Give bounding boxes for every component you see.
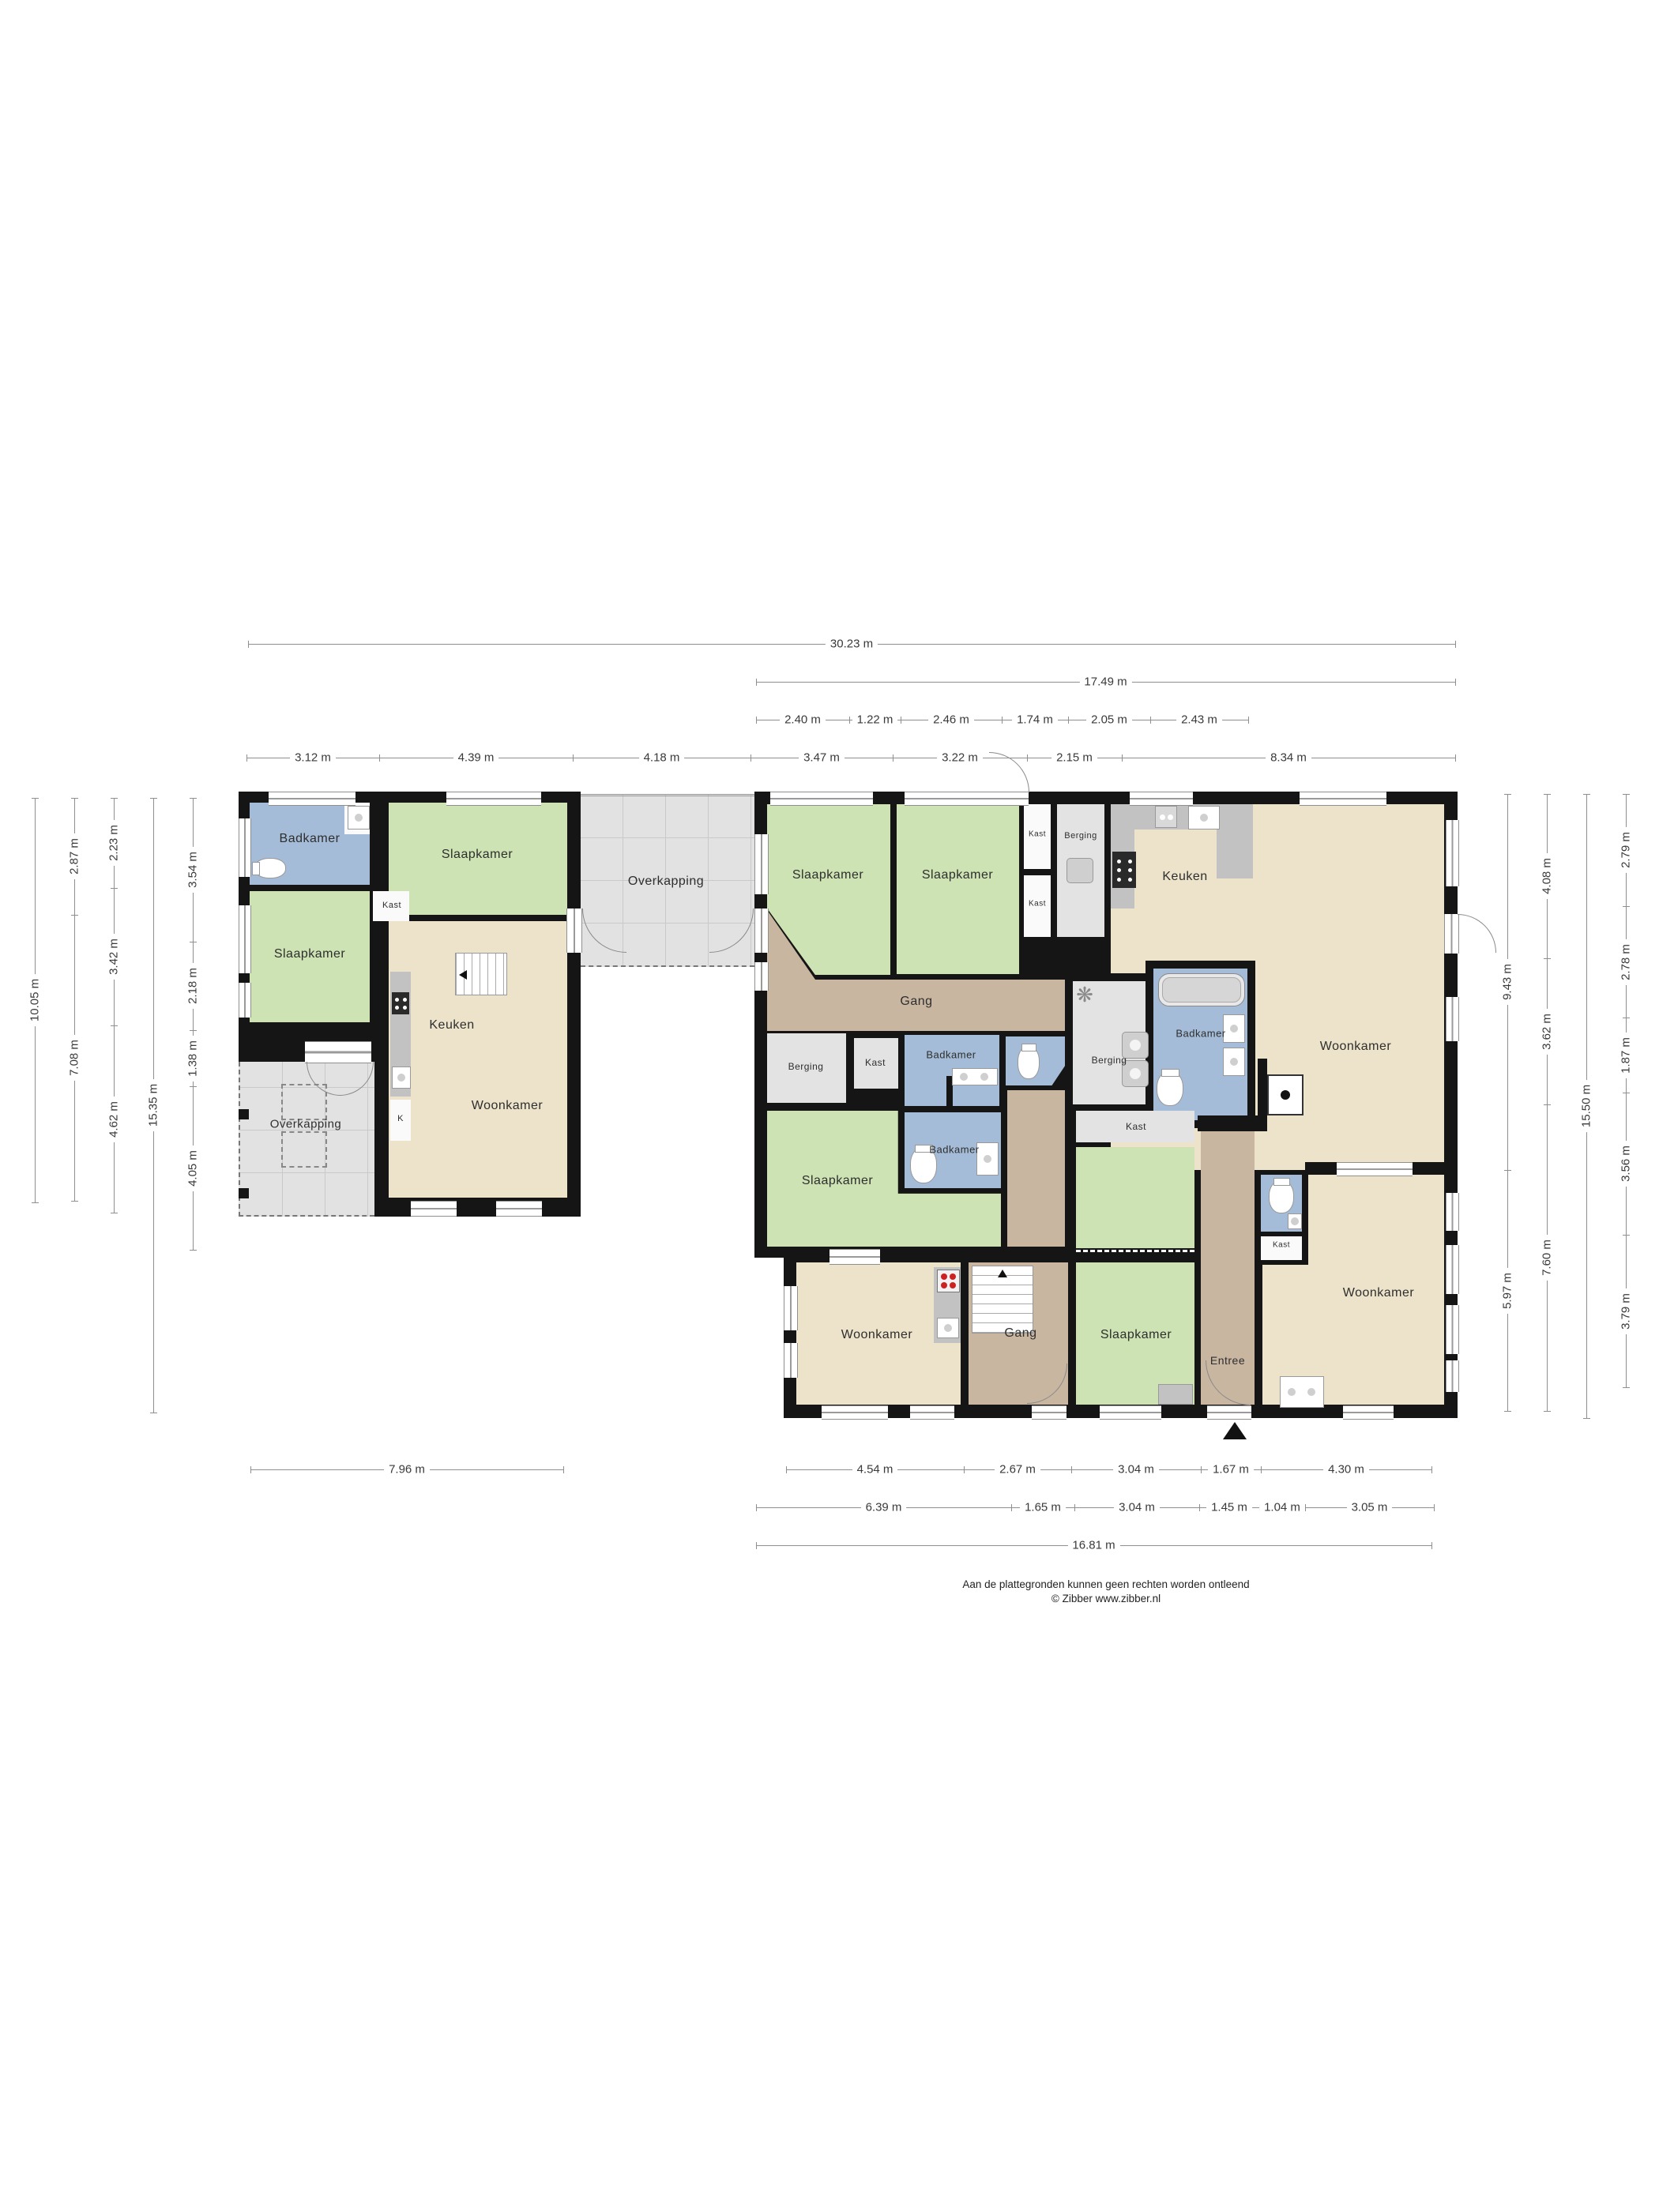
dimension-tick <box>1504 1411 1511 1412</box>
dimension-label: 3.47 m <box>799 750 845 766</box>
stove-icon <box>392 992 409 1014</box>
dimension-tick <box>756 717 757 724</box>
pillar <box>239 1109 249 1119</box>
window <box>1130 792 1193 806</box>
dimension-tick <box>111 1213 118 1213</box>
room-label: Woonkamer <box>841 1328 912 1342</box>
dimension-label: 1.45 m <box>1206 1500 1252 1515</box>
skylight-outline <box>281 1131 327 1168</box>
dimension-tick <box>1305 1504 1306 1511</box>
room-label: Kast <box>1126 1121 1146 1132</box>
dimension-label: 7.96 m <box>384 1462 430 1477</box>
window <box>1446 1305 1459 1354</box>
boiler-icon <box>1066 858 1093 883</box>
room-label: Badkamer <box>929 1144 979 1156</box>
dimension-tick <box>71 1201 78 1202</box>
dimension-tick <box>901 717 901 724</box>
window <box>770 792 873 806</box>
dimension-tick <box>756 1504 757 1511</box>
window <box>1446 997 1459 1041</box>
stairs-icon <box>972 1266 1033 1334</box>
dimension-tick <box>893 754 893 762</box>
room-label: Berging <box>1092 1055 1127 1066</box>
dimension-tick <box>1199 1504 1200 1511</box>
dimension-label: 4.18 m <box>639 750 685 766</box>
dimension-tick <box>248 641 249 648</box>
cooktop-icon <box>937 1270 960 1292</box>
room-label: Woonkamer <box>472 1099 543 1113</box>
window <box>1207 1405 1251 1420</box>
dimension-tick <box>1248 717 1249 724</box>
room-label: Keuken <box>1162 870 1207 884</box>
room-label: Berging <box>788 1061 824 1072</box>
window <box>754 834 769 894</box>
dimension-tick <box>71 915 78 916</box>
dimension-label: 1.67 m <box>1208 1462 1254 1477</box>
dimension-label: 3.12 m <box>290 750 336 766</box>
room-label: Gang <box>1004 1326 1036 1341</box>
dimension-tick <box>1261 1466 1262 1473</box>
room-label: Badkamer <box>280 832 340 846</box>
room-label: Kast <box>1273 1241 1290 1250</box>
room-label: Slaapkamer <box>792 868 863 882</box>
window <box>1446 1360 1459 1392</box>
dimension-tick <box>190 1250 197 1251</box>
dimension-tick <box>190 798 197 799</box>
sink-icon <box>392 1066 411 1089</box>
dashed-partition <box>1076 1250 1194 1252</box>
footer-disclaimer: Aan de plattegronden kunnen geen rechten… <box>754 1578 1458 1590</box>
dimension-label: 3.56 m <box>1619 1141 1634 1187</box>
dimension-tick <box>190 942 197 942</box>
dimension-tick <box>190 1030 197 1031</box>
dimension-label: 8.34 m <box>1266 750 1311 766</box>
window <box>1100 1405 1161 1420</box>
dimension-label: 2.67 m <box>995 1462 1040 1477</box>
dimension-label: 4.05 m <box>186 1145 201 1191</box>
dimension-label: 6.39 m <box>861 1500 907 1515</box>
dimension-label: 1.74 m <box>1012 713 1058 728</box>
window <box>829 1249 880 1265</box>
dimension-label: 4.30 m <box>1323 1462 1369 1477</box>
toilet-icon <box>254 858 286 878</box>
dimension-label: 2.18 m <box>186 963 201 1009</box>
dimension-tick <box>1504 794 1511 795</box>
room-label: Overkapping <box>270 1118 342 1131</box>
dimension-label: 9.43 m <box>1500 959 1515 1005</box>
cabinet-icon <box>1158 1384 1193 1405</box>
sink-icon <box>1223 1014 1245 1043</box>
dimension-label: 2.87 m <box>67 833 82 879</box>
dimension-label: 2.15 m <box>1051 750 1097 766</box>
dimension-tick <box>1583 1418 1590 1419</box>
dimension-tick <box>1544 1104 1551 1105</box>
dimension-tick <box>1011 1504 1012 1511</box>
pillar <box>239 1188 249 1198</box>
dimension-label: 17.49 m <box>1079 675 1131 690</box>
wall-stub <box>1198 1115 1261 1131</box>
window <box>784 1343 798 1378</box>
dimension-tick <box>756 1542 757 1549</box>
dimension-label: 3.22 m <box>937 750 983 766</box>
dimension-label: 1.65 m <box>1020 1500 1066 1515</box>
dimension-label: 3.04 m <box>1114 1500 1160 1515</box>
dimension-tick <box>246 754 247 762</box>
dimension-tick <box>1434 1504 1435 1511</box>
sink-icon <box>1223 1048 1245 1076</box>
dimension-label: 4.08 m <box>1540 853 1555 899</box>
window <box>910 1405 954 1420</box>
room-label: Badkamer <box>1176 1028 1225 1040</box>
room-aanrecht-top <box>1111 804 1253 829</box>
fireplace-icon <box>1267 1074 1303 1115</box>
room-label: Slaapkamer <box>274 947 345 961</box>
dimension-label: 15.35 m <box>146 1079 161 1131</box>
room-label: Slaapkamer <box>802 1174 873 1188</box>
dimension-tick <box>190 1086 197 1087</box>
double-washbasin-icon <box>1280 1376 1324 1408</box>
dimension-tick <box>1504 1170 1511 1171</box>
window <box>239 983 251 1018</box>
dishwasher-icon <box>1155 806 1177 828</box>
window <box>1446 1245 1459 1294</box>
kitchen-sink-icon <box>1188 806 1220 829</box>
washbasin-icon <box>976 1142 999 1176</box>
window <box>1337 1162 1413 1176</box>
room-slaapkamer-b <box>897 804 1019 974</box>
dimension-tick <box>573 754 574 762</box>
room-label: Kast <box>1029 900 1046 908</box>
dimension-label: 1.38 m <box>186 1036 201 1082</box>
dimension-label: 30.23 m <box>826 637 878 652</box>
dimension-tick <box>1201 1466 1202 1473</box>
dimension-tick <box>111 1025 118 1026</box>
room-label: Kast <box>382 901 401 910</box>
dimension-tick <box>379 754 380 762</box>
dimension-tick <box>1455 679 1456 686</box>
ventilation-icon: ❋ <box>1073 983 1097 1006</box>
window <box>1446 1193 1459 1231</box>
room-label: Slaapkamer <box>442 848 513 862</box>
dimension-label: 4.62 m <box>107 1097 122 1142</box>
dimension-tick <box>1544 1411 1551 1412</box>
window <box>905 792 999 806</box>
dimension-tick <box>1623 794 1630 795</box>
dimension-tick <box>32 1202 39 1203</box>
bathtub-icon <box>1158 973 1245 1006</box>
door-arc <box>1458 914 1496 953</box>
dimension-tick <box>1002 717 1003 724</box>
room-label: Kast <box>865 1057 886 1068</box>
window <box>1032 1405 1066 1420</box>
dimension-tick <box>1623 1387 1630 1388</box>
dimension-tick <box>1544 794 1551 795</box>
room-slaapkamer-rechts-boven <box>1076 1147 1194 1248</box>
room-label: Kast <box>1029 830 1046 839</box>
room-label: Keuken <box>429 1018 474 1033</box>
window <box>1300 792 1386 806</box>
dimension-label: 15.50 m <box>1579 1080 1594 1132</box>
window <box>496 1201 542 1217</box>
dimension-label: 2.79 m <box>1619 827 1634 873</box>
dimension-tick <box>1583 794 1590 795</box>
dimension-label: 5.97 m <box>1500 1268 1515 1314</box>
room-label: Woonkamer <box>1343 1286 1414 1300</box>
entrance-marker-icon <box>1223 1422 1247 1439</box>
dimension-tick <box>563 1466 564 1473</box>
dimension-label: 2.40 m <box>780 713 826 728</box>
window <box>239 905 251 973</box>
dimension-label: 3.42 m <box>107 934 122 980</box>
window <box>411 1201 457 1217</box>
room-label: Gang <box>900 995 932 1009</box>
washbasin-icon <box>348 806 370 829</box>
stairs-icon <box>455 953 507 995</box>
dimension-label: 3.62 m <box>1540 1009 1555 1055</box>
dimension-tick <box>1623 906 1630 907</box>
window <box>784 1286 798 1330</box>
dimension-label: 3.79 m <box>1619 1288 1634 1334</box>
dimension-tick <box>1431 1466 1432 1473</box>
dimension-tick <box>1122 754 1123 762</box>
dimension-tick <box>756 679 757 686</box>
dimension-label: 2.46 m <box>928 713 974 728</box>
dimension-tick <box>1431 1542 1432 1549</box>
sink-icon <box>937 1318 959 1338</box>
dimension-label: 2.43 m <box>1176 713 1222 728</box>
window <box>822 1405 888 1420</box>
wall-cutout <box>754 1258 784 1418</box>
room-label: Entree <box>1210 1354 1245 1367</box>
dimension-label: 3.54 m <box>186 847 201 893</box>
dimension-label: 3.05 m <box>1347 1500 1393 1515</box>
dimension-tick <box>111 888 118 889</box>
window <box>754 908 769 953</box>
double-sink-icon <box>952 1068 998 1085</box>
dimension-tick <box>1455 641 1456 648</box>
room-label: Slaapkamer <box>1100 1328 1172 1342</box>
room-label: Overkapping <box>628 875 704 889</box>
toilet-icon <box>1269 1180 1294 1213</box>
dimension-tick <box>32 798 39 799</box>
window <box>566 908 582 953</box>
dimension-tick <box>786 1466 787 1473</box>
window <box>269 792 355 806</box>
window <box>1343 1405 1394 1420</box>
toilet-icon <box>1157 1071 1183 1106</box>
window <box>989 792 1029 806</box>
room-label: Badkamer <box>926 1049 976 1061</box>
dimension-label: 7.60 m <box>1540 1235 1555 1281</box>
dimension-tick <box>1623 1093 1630 1093</box>
dimension-tick <box>750 754 751 762</box>
dimension-label: 16.81 m <box>1067 1538 1119 1553</box>
dimension-label: 4.54 m <box>852 1462 898 1477</box>
dimension-tick <box>1027 754 1028 762</box>
room-label: Berging <box>1064 831 1097 841</box>
dimension-tick <box>849 717 850 724</box>
dimension-label: 2.05 m <box>1086 713 1132 728</box>
dimension-label: 2.23 m <box>107 820 122 866</box>
dimension-tick <box>111 798 118 799</box>
dimension-label: 7.08 m <box>67 1035 82 1081</box>
floorplan-canvas: Aan de plattegronden kunnen geen rechten… <box>0 0 1659 2212</box>
dimension-label: 3.04 m <box>1113 1462 1159 1477</box>
room-aanrecht-rechts <box>1217 829 1253 878</box>
room-label: Slaapkamer <box>922 868 993 882</box>
gas-stove-icon <box>1112 852 1136 888</box>
dimension-label: 1.04 m <box>1259 1500 1305 1515</box>
window <box>754 962 769 991</box>
dimension-tick <box>1623 1235 1630 1236</box>
window <box>305 1041 371 1063</box>
dimension-label: 1.22 m <box>852 713 898 728</box>
window <box>1446 820 1459 886</box>
dimension-tick <box>71 798 78 799</box>
dimension-tick <box>1150 717 1151 724</box>
room-gang-strook <box>1007 1090 1065 1247</box>
dimension-tick <box>1455 754 1456 762</box>
dimension-label: 10.05 m <box>28 974 43 1026</box>
dimension-tick <box>964 1466 965 1473</box>
sink-icon <box>1288 1213 1302 1229</box>
window <box>446 792 541 806</box>
dimension-tick <box>1071 1466 1072 1473</box>
dimension-label: 1.87 m <box>1619 1033 1634 1078</box>
dimension-tick <box>250 1466 251 1473</box>
window <box>239 818 251 877</box>
room-label: Woonkamer <box>1320 1040 1391 1054</box>
dimension-tick <box>150 798 157 799</box>
dimension-label: 2.78 m <box>1619 939 1634 985</box>
dimension-tick <box>1068 717 1069 724</box>
dimension-tick <box>150 1413 157 1413</box>
dimension-label: 4.39 m <box>453 750 499 766</box>
toilet-icon <box>1018 1046 1040 1079</box>
room-label: K <box>397 1114 404 1123</box>
dimension-tick <box>1623 1018 1630 1018</box>
dimension-tick <box>1544 958 1551 959</box>
footer-copyright: © Zibber www.zibber.nl <box>754 1593 1458 1604</box>
dimension-tick <box>1074 1504 1075 1511</box>
